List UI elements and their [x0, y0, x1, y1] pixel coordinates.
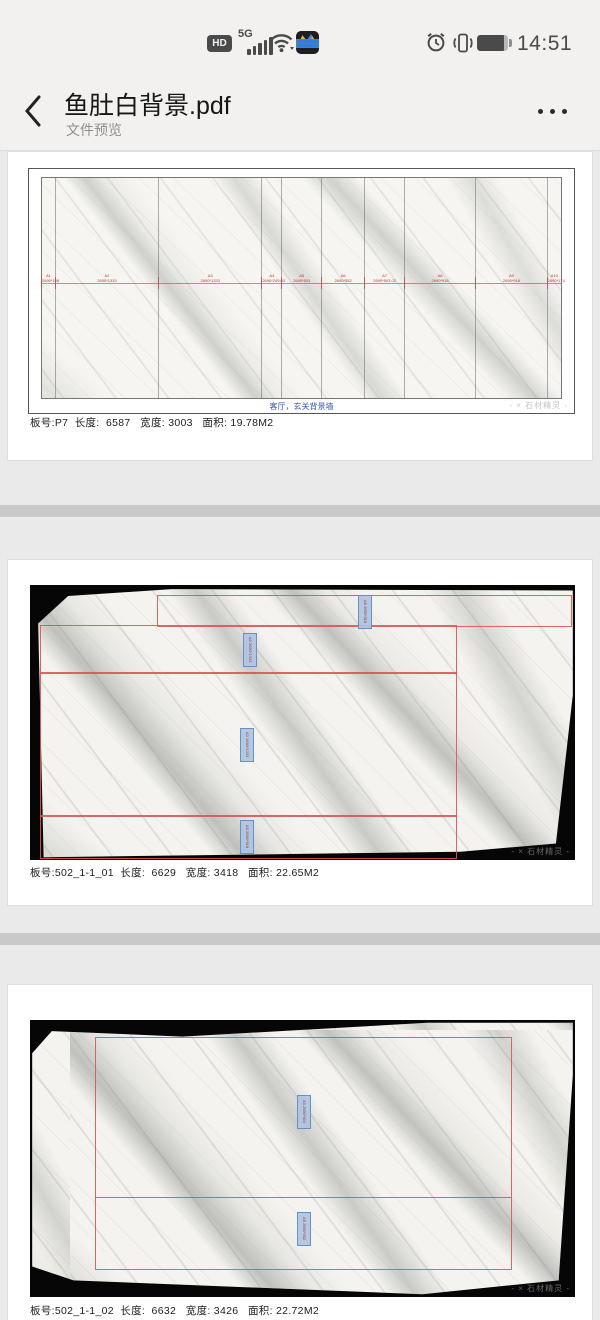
panel-label: A52690*503	[282, 273, 321, 283]
panel-label: A102690*174	[548, 273, 561, 283]
wall-caption: 客厅，玄关背景墙	[29, 401, 574, 412]
slab-panel: A52690*503	[282, 178, 322, 398]
panel-label: A42690*249.03	[262, 273, 281, 283]
slab-panel: A22690*1333	[56, 178, 159, 398]
vibrate-icon	[451, 33, 475, 58]
more-options-button[interactable]	[528, 98, 576, 124]
slab-info-line: 板号:502_1-1_02 长度: 6632 宽度: 3426 面积: 22.7…	[30, 1303, 319, 1318]
slab-photo: A8 2690*918 A2 2690*1333 A3 2690*1333 A9…	[30, 585, 575, 860]
piece-tag: A9 2690*918	[240, 820, 254, 854]
clock-time: 14:51	[517, 32, 572, 56]
layout-drawing-sheet: A12690*168A22690*1333A32690*1333A42690*2…	[28, 168, 575, 414]
slab-info-line: 板号:502_1-1_01 长度: 6629 宽度: 3418 面积: 22.6…	[30, 865, 319, 880]
page-separator	[0, 505, 600, 517]
slab-panel: A102690*174	[548, 178, 561, 398]
cut-divider-line	[95, 1197, 512, 1198]
piece-tag: A2 2690*1333	[243, 633, 257, 667]
notification-app-icon	[296, 31, 319, 54]
slab-panel: A72690*503.02	[365, 178, 405, 398]
pdf-page-2[interactable]: A8 2690*918 A2 2690*1333 A3 2690*1333 A9…	[8, 560, 592, 905]
panel-label: A22690*1333	[56, 273, 158, 283]
panel-label: A32690*1333	[159, 273, 261, 283]
pdf-page-1[interactable]: A12690*168A22690*1333A32690*1333A42690*2…	[8, 152, 592, 460]
page-title: 鱼肚白背景.pdf	[64, 86, 231, 122]
slab-panel: A32690*1333	[159, 178, 262, 398]
piece-tag: A6 2690*552	[297, 1212, 311, 1246]
back-button[interactable]	[16, 90, 50, 132]
slab-panel: A42690*249.03	[262, 178, 282, 398]
wifi-icon	[269, 32, 294, 58]
slab-panel: A82690*918	[405, 178, 476, 398]
watermark: - × 石材精灵 -	[511, 846, 570, 857]
piece-tag: A8 2690*918	[358, 595, 372, 629]
slab-panel: A92690*918	[476, 178, 547, 398]
panel-label: A82690*918	[405, 273, 475, 283]
slab-info-line: 板号:P7 长度: 6587 宽度: 3003 面积: 19.78M2	[30, 415, 273, 430]
hd-badge-icon: HD	[207, 35, 232, 52]
panel-strip: A12690*168A22690*1333A32690*1333A42690*2…	[41, 177, 562, 399]
panel-label: A72690*503.02	[365, 273, 404, 283]
page-separator	[0, 933, 600, 945]
watermark: - × 石材精灵 -	[509, 400, 568, 411]
panel-label: A62690*552	[322, 273, 364, 283]
page-subtitle: 文件预览	[66, 120, 122, 140]
piece-tag: A3 2690*1333	[240, 728, 254, 762]
slab-panel: A12690*168	[42, 178, 56, 398]
top-bar: HD 5G	[0, 0, 600, 151]
battery-icon	[477, 35, 508, 51]
watermark: - × 石材精灵 -	[511, 1283, 570, 1294]
piece-tag: A5 2690*503	[297, 1095, 311, 1129]
phone-screen: HD 5G	[0, 0, 600, 1320]
pdf-page-3[interactable]: A5 2690*503 A6 2690*552 - × 石材精灵 - 板号:50…	[8, 985, 592, 1320]
slab-panel: A62690*552	[322, 178, 365, 398]
slab-photo: A5 2690*503 A6 2690*552 - × 石材精灵 -	[30, 1020, 575, 1297]
panel-label: A92690*918	[476, 273, 546, 283]
alarm-icon	[425, 31, 447, 58]
panel-label: A12690*168	[42, 273, 55, 283]
